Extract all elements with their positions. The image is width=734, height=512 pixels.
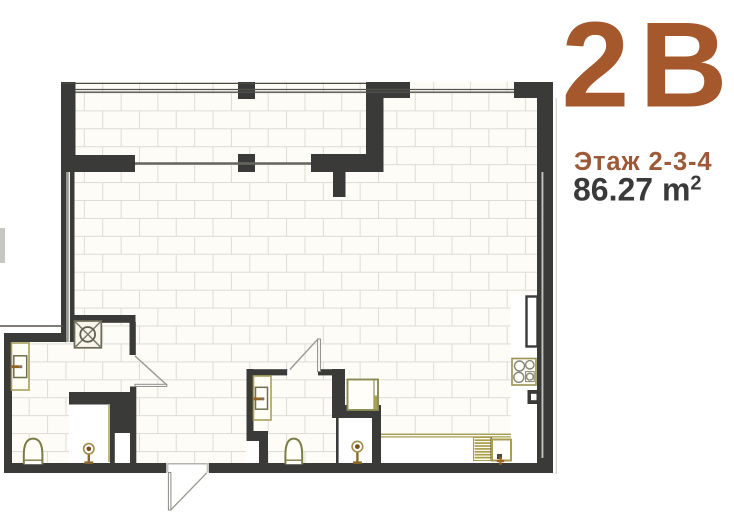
svg-text:2В: 2В (562, 0, 734, 133)
svg-text:86.27 m2: 86.27 m2 (573, 172, 702, 208)
